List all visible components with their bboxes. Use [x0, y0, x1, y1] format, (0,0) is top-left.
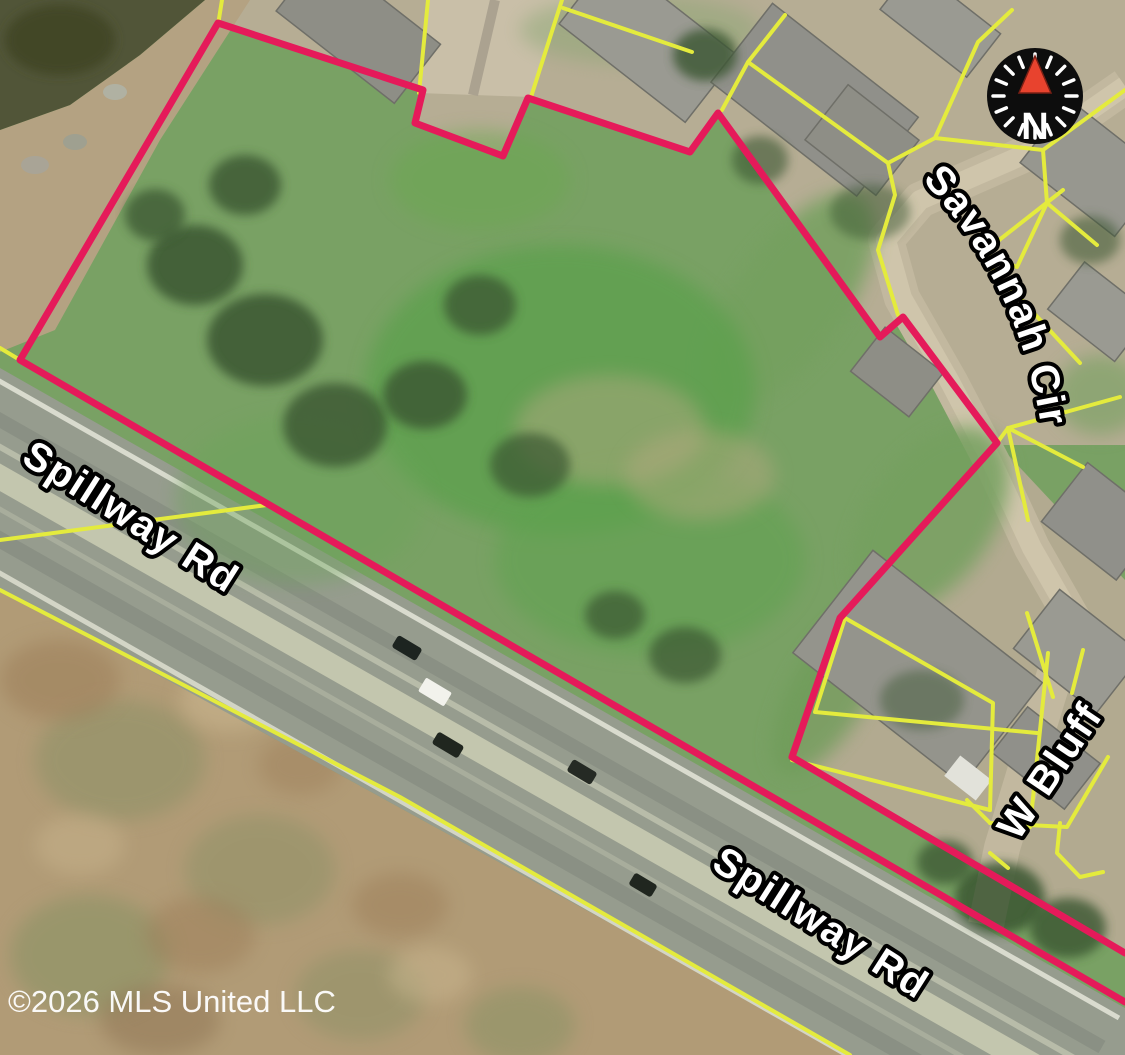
copyright-watermark: ©2026 MLS United LLC	[8, 984, 336, 1019]
compass-north-label: N	[1021, 106, 1048, 148]
aerial-map-screenshot: N Spillway Rd Spillway Rd Savannah Cir W…	[0, 0, 1125, 1055]
aerial-map: N Spillway Rd Spillway Rd Savannah Cir W…	[0, 0, 1125, 1055]
